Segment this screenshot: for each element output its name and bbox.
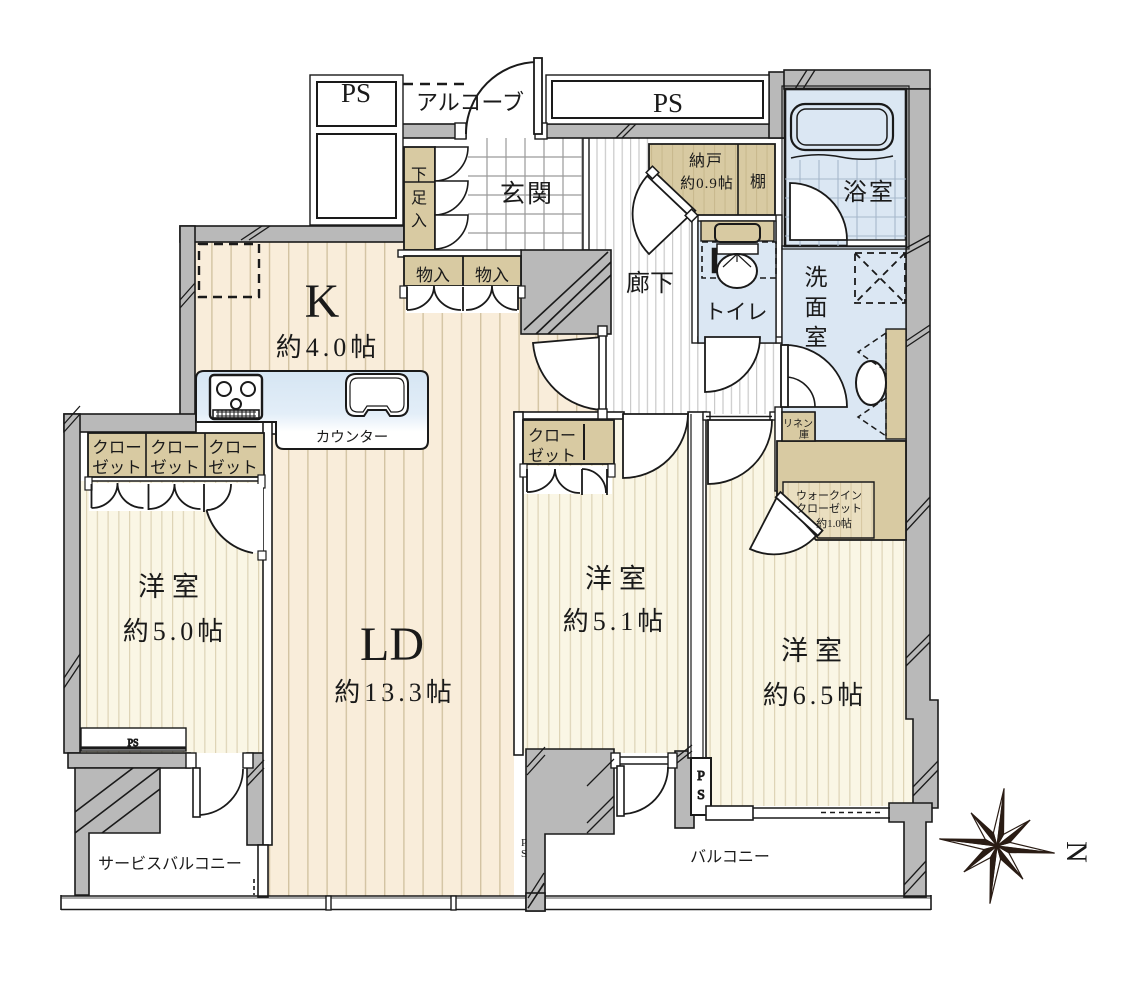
svg-text:約0.9帖: 約0.9帖	[680, 175, 734, 192]
svg-text:クロー: クロー	[528, 427, 576, 445]
svg-text:クロー: クロー	[150, 438, 200, 457]
svg-text:ゼット: ゼット	[150, 458, 200, 477]
svg-text:入: 入	[411, 213, 427, 230]
svg-text:約4.0帖: 約4.0帖	[276, 333, 381, 362]
svg-text:S: S	[521, 848, 527, 860]
svg-text:廊下: 廊下	[626, 270, 674, 297]
svg-text:ウォークイン: ウォークイン	[796, 489, 862, 502]
svg-text:約1.0帖: 約1.0帖	[816, 516, 852, 530]
svg-text:LD: LD	[360, 618, 424, 671]
svg-text:約5.1帖: 約5.1帖	[563, 607, 668, 636]
svg-text:クローゼット: クローゼット	[796, 502, 862, 515]
svg-text:下: 下	[411, 167, 427, 184]
svg-text:物入: 物入	[416, 266, 450, 285]
svg-text:洋室: 洋室	[781, 636, 849, 666]
svg-text:カウンター: カウンター	[316, 429, 389, 446]
svg-text:ゼット: ゼット	[528, 447, 576, 465]
svg-text:庫: 庫	[799, 428, 809, 441]
svg-text:約13.3帖: 約13.3帖	[334, 678, 456, 707]
svg-text:K: K	[305, 275, 340, 328]
svg-text:洗: 洗	[805, 265, 828, 290]
svg-text:ゼット: ゼット	[92, 458, 142, 477]
svg-text:PS: PS	[653, 88, 683, 118]
svg-text:洋室: 洋室	[138, 572, 206, 602]
svg-text:室: 室	[805, 325, 828, 350]
svg-text:クロー: クロー	[92, 438, 142, 457]
svg-text:約6.5帖: 約6.5帖	[763, 681, 868, 710]
svg-text:P: P	[697, 769, 705, 784]
svg-text:棚: 棚	[750, 173, 766, 191]
svg-text:納戸: 納戸	[689, 152, 723, 170]
svg-text:サービスバルコニー: サービスバルコニー	[98, 855, 242, 873]
svg-text:バルコニー: バルコニー	[690, 849, 770, 866]
svg-text:約5.0帖: 約5.0帖	[123, 617, 228, 646]
svg-text:足: 足	[411, 190, 427, 207]
svg-text:物入: 物入	[475, 266, 509, 285]
svg-text:アルコーブ: アルコーブ	[416, 90, 524, 115]
svg-text:リネン: リネン	[783, 418, 813, 430]
svg-text:浴室: 浴室	[843, 179, 895, 206]
svg-text:クロー: クロー	[208, 438, 258, 457]
svg-text:洋室: 洋室	[585, 564, 653, 594]
svg-text:玄関: 玄関	[500, 180, 554, 208]
svg-text:ゼット: ゼット	[208, 458, 258, 477]
svg-text:S: S	[697, 788, 705, 803]
svg-text:PS: PS	[127, 738, 138, 749]
svg-text:N: N	[1060, 841, 1093, 863]
svg-text:トイレ: トイレ	[705, 300, 768, 324]
svg-text:PS: PS	[341, 78, 371, 108]
svg-text:面: 面	[805, 295, 828, 320]
